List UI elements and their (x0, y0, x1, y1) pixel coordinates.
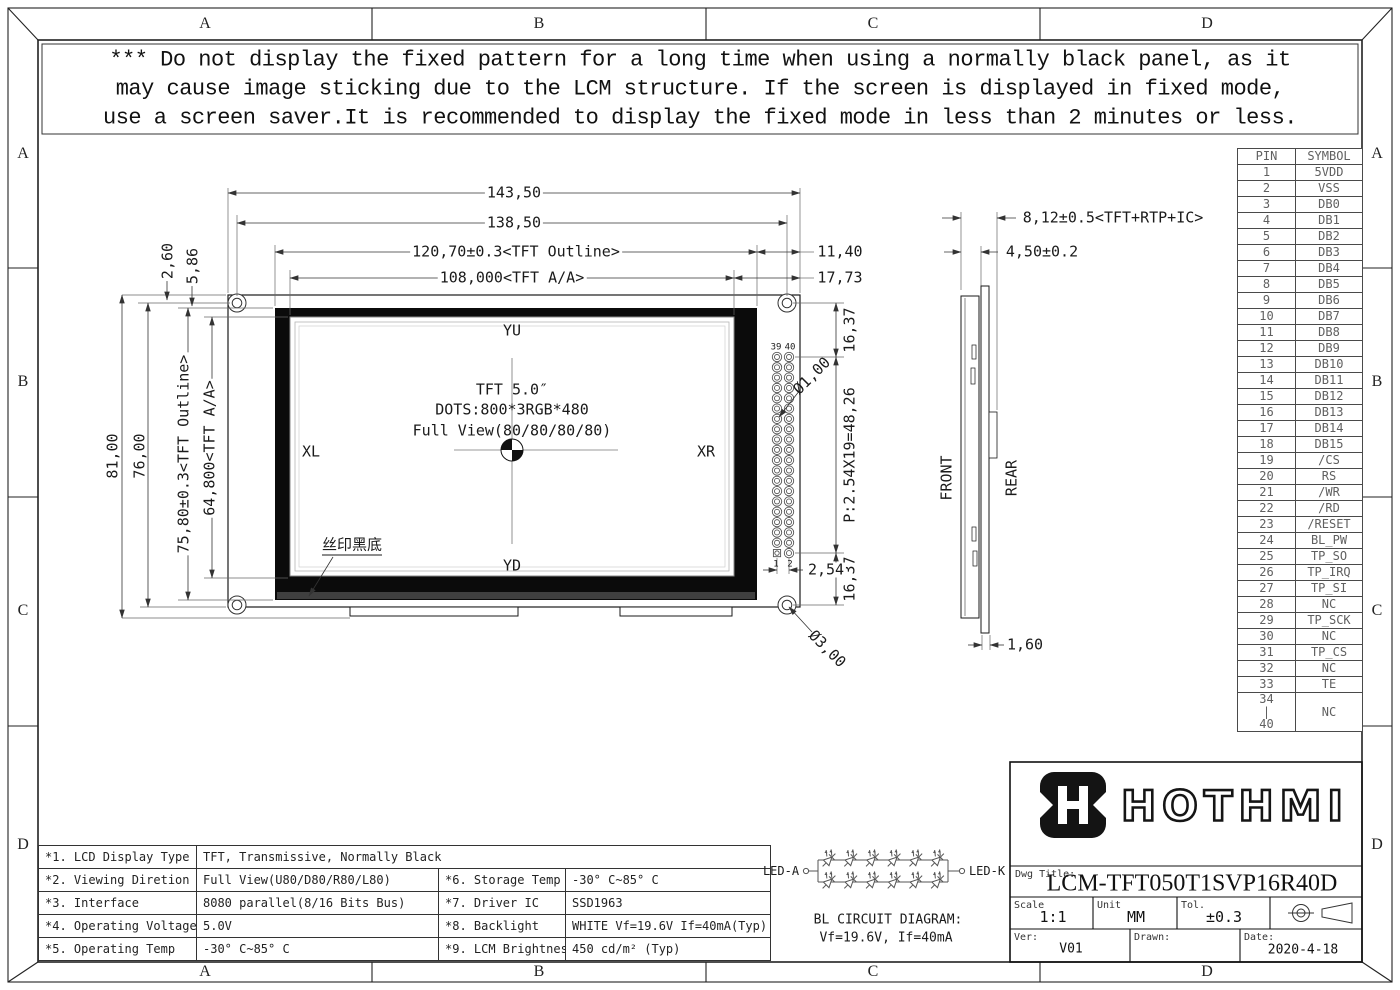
spec-row: *2. Viewing Diretion Full View(U80/D80/R… (39, 869, 771, 892)
pin-symbol: TP_SCK (1296, 613, 1363, 629)
pin-symbol: RS (1296, 469, 1363, 485)
pin-symbol: DB11 (1296, 373, 1363, 389)
pin-number: 20 (1238, 469, 1296, 485)
pin-number: 2 (1238, 181, 1296, 197)
panel-view-text: Full View(80/80/80/80) (411, 424, 614, 439)
spec-label: *7. Driver IC (439, 892, 566, 915)
dim-width-tft-outline: 120,70±0.3<TFT Outline> (410, 245, 622, 260)
panel-dots-text: DOTS:800*3RGB*480 (433, 403, 591, 418)
warning-line-2: may cause image sticking due to the LCM … (116, 77, 1285, 102)
pin-row: 2 VSS (1238, 181, 1363, 197)
pin-row: 17 DB14 (1238, 421, 1363, 437)
pin-row: 14 DB11 (1238, 373, 1363, 389)
pin-symbol: VSS (1296, 181, 1363, 197)
pin-row: 28 NC (1238, 597, 1363, 613)
dim-pin-pitch: 2,54 (806, 563, 846, 578)
pin-number: 22 (1238, 501, 1296, 517)
pin-number: 3 (1238, 197, 1296, 213)
pin-row: 29 TP_SCK (1238, 613, 1363, 629)
pin-symbol: TP_SI (1296, 581, 1363, 597)
pin-number: 33 (1238, 677, 1296, 693)
pin-number: 9 (1238, 293, 1296, 309)
bl-circuit (803, 847, 964, 891)
date-value: 2020-4-18 (1268, 943, 1338, 958)
zone-right-d: D (1371, 836, 1383, 854)
pin-number: 17 (1238, 421, 1296, 437)
pin-number: 12 (1238, 341, 1296, 357)
zone-right-c: C (1372, 602, 1383, 620)
connector-pin1-label: 1 (771, 561, 780, 570)
label-xr: XR (695, 445, 717, 460)
pin-symbol: DB5 (1296, 277, 1363, 293)
pin-row: 32 NC (1238, 661, 1363, 677)
pin-row: 24 BL_PW (1238, 533, 1363, 549)
pin-number: 26 (1238, 565, 1296, 581)
tol-label: Tol. (1181, 900, 1205, 911)
tol-value: ±0.3 (1206, 908, 1242, 926)
pin-symbol: DB0 (1296, 197, 1363, 213)
dim-connector-top: 16,37 (843, 305, 858, 354)
pin-symbol: BL_PW (1296, 533, 1363, 549)
zone-right-a: A (1371, 145, 1383, 163)
pin-row: 22 /RD (1238, 501, 1363, 517)
pin-table-header: PIN SYMBOL (1238, 149, 1363, 165)
led-array (816, 847, 946, 891)
spec-value: 450 cd/m² (Typ) (566, 938, 771, 961)
pin-symbol: DB14 (1296, 421, 1363, 437)
spec-row: *3. Interface 8080 parallel(8/16 Bits Bu… (39, 892, 771, 915)
pin-row: 21 /WR (1238, 485, 1363, 501)
pin-number: 19 (1238, 453, 1296, 469)
zone-left-b: B (18, 373, 29, 391)
zone-bottom-d: D (1201, 963, 1213, 981)
zone-bottom-c: C (868, 963, 879, 981)
zone-left-a: A (17, 145, 29, 163)
pin-symbol: TP_SO (1296, 549, 1363, 565)
pin-row: 13 DB10 (1238, 357, 1363, 373)
pin-number: 15 (1238, 389, 1296, 405)
dim-top-offset1: 2,60 (161, 241, 176, 281)
pin-symbol: DB2 (1296, 229, 1363, 245)
bl-circuit-subtitle: Vf=19.6V, If=40mA (817, 932, 954, 945)
pin-number: 4 (1238, 213, 1296, 229)
dim-height-holes: 76,00 (133, 431, 148, 480)
brand-logo-icon (1040, 772, 1106, 838)
pin-number: 21 (1238, 485, 1296, 501)
spec-value: -30° C~85° C (566, 869, 771, 892)
pin-symbol: NC (1296, 629, 1363, 645)
pin-number: 10 (1238, 309, 1296, 325)
pin-symbol: /RESET (1296, 517, 1363, 533)
pin-row: 15 DB12 (1238, 389, 1363, 405)
pin-row: 3 DB0 (1238, 197, 1363, 213)
symbol-column-header: SYMBOL (1296, 149, 1363, 165)
zone-top-c: C (868, 15, 879, 33)
pin-symbol: DB12 (1296, 389, 1363, 405)
side-rear-label: REAR (1005, 458, 1020, 498)
led-anode-label: LED-A (761, 865, 801, 877)
pin-row: 25 TP_SO (1238, 549, 1363, 565)
pin-symbol: TP_IRQ (1296, 565, 1363, 581)
pin-symbol: /RD (1296, 501, 1363, 517)
pin-symbol: /CS (1296, 453, 1363, 469)
connector-pin39-label: 39 (769, 344, 784, 353)
pin-row: 27 TP_SI (1238, 581, 1363, 597)
pin-row: 26 TP_IRQ (1238, 565, 1363, 581)
dim-thickness-pcb: 1,60 (1005, 638, 1045, 653)
pin-row: 30 NC (1238, 629, 1363, 645)
unit-label: Unit (1097, 900, 1121, 911)
zone-right-b: B (1372, 373, 1383, 391)
pin-row: 31 TP_CS (1238, 645, 1363, 661)
warning-line-3: use a screen saver.It is recommended to … (103, 106, 1297, 131)
pin-symbol: DB8 (1296, 325, 1363, 341)
scale-value: 1:1 (1039, 908, 1066, 926)
pin-symbol: DB10 (1296, 357, 1363, 373)
pin-number: 14 (1238, 373, 1296, 389)
pin-row: 4 DB1 (1238, 213, 1363, 229)
led-cathode-label: LED-K (967, 865, 1007, 877)
pin-symbol: /WR (1296, 485, 1363, 501)
zone-left-d: D (17, 836, 29, 854)
spec-label: *5. Operating Temp (39, 938, 197, 961)
pin-number: 11 (1238, 325, 1296, 341)
pin-number: 23 (1238, 517, 1296, 533)
pin-row: 34 | 40 NC (1238, 693, 1363, 732)
pin-symbol: DB7 (1296, 309, 1363, 325)
label-yu: YU (501, 324, 523, 339)
spec-value: -30° C~85° C (197, 938, 439, 961)
pin-table: PIN SYMBOL 1 5VDD 2 VSS 3 DB0 4 DB1 (1237, 148, 1363, 732)
pin-row: 19 /CS (1238, 453, 1363, 469)
label-xl: XL (300, 445, 322, 460)
center-target-icon (501, 439, 523, 461)
connector-pin2-label: 2 (785, 561, 794, 570)
spec-label: *6. Storage Temp (439, 869, 566, 892)
zone-bottom-a: A (199, 963, 211, 981)
side-view (961, 286, 997, 633)
date-label: Date: (1244, 932, 1274, 943)
pin-symbol: DB13 (1296, 405, 1363, 421)
pin-symbol: DB6 (1296, 293, 1363, 309)
spec-label: *9. LCM Brightness (439, 938, 566, 961)
zone-left-c: C (18, 602, 29, 620)
spec-value: SSD1963 (566, 892, 771, 915)
warning-line-1: *** Do not display the fixed pattern for… (109, 48, 1290, 73)
pin-number: 18 (1238, 437, 1296, 453)
dim-height-total: 81,00 (106, 431, 121, 480)
ver-value: V01 (1059, 942, 1082, 957)
pin-number: 25 (1238, 549, 1296, 565)
spec-row: *4. Operating Voltage 5.0V *8. Backlight… (39, 915, 771, 938)
pin-symbol: DB4 (1296, 261, 1363, 277)
panel-size-text: TFT 5.0″ (474, 383, 550, 398)
bl-circuit-title: BL CIRCUIT DIAGRAM: (812, 914, 965, 927)
pin-symbol: DB1 (1296, 213, 1363, 229)
pin-symbol: NC (1296, 661, 1363, 677)
pin-number: 27 (1238, 581, 1296, 597)
zone-top-b: B (534, 15, 545, 33)
pin-symbol: DB9 (1296, 341, 1363, 357)
pin-number: 32 (1238, 661, 1296, 677)
label-yd: YD (501, 559, 523, 574)
spec-table: *1. LCD Display Type TFT, Transmissive, … (38, 845, 771, 961)
spec-label: *4. Operating Voltage (39, 915, 197, 938)
spec-label: *1. LCD Display Type (39, 846, 197, 869)
pin-number: 31 (1238, 645, 1296, 661)
pin-number: 6 (1238, 245, 1296, 261)
pin-row: 16 DB13 (1238, 405, 1363, 421)
pin-row: 10 DB7 (1238, 309, 1363, 325)
spec-row: *5. Operating Temp -30° C~85° C *9. LCM … (39, 938, 771, 961)
pin-column-header: PIN (1238, 149, 1296, 165)
pin-number: 1 (1238, 165, 1296, 181)
spec-value: 5.0V (197, 915, 439, 938)
pin-symbol: NC (1296, 693, 1363, 732)
pin-symbol: DB15 (1296, 437, 1363, 453)
spec-row: *1. LCD Display Type TFT, Transmissive, … (39, 846, 771, 869)
pin-row: 20 RS (1238, 469, 1363, 485)
pin-number: 28 (1238, 597, 1296, 613)
pin-number: 30 (1238, 629, 1296, 645)
unit-value: MM (1127, 908, 1145, 926)
pin-number: 7 (1238, 261, 1296, 277)
spec-value: 8080 parallel(8/16 Bits Bus) (197, 892, 439, 915)
pin-number: 34 | 40 (1238, 693, 1296, 732)
spec-label: *2. Viewing Diretion (39, 869, 197, 892)
pin-row: 33 TE (1238, 677, 1363, 693)
ver-label: Ver: (1014, 932, 1038, 943)
dim-width-right2: 17,73 (815, 271, 864, 286)
pin-number: 8 (1238, 277, 1296, 293)
pin-row: 23 /RESET (1238, 517, 1363, 533)
pin-number: 5 (1238, 229, 1296, 245)
pin-symbol: NC (1296, 597, 1363, 613)
pin-number: 29 (1238, 613, 1296, 629)
pin-symbol: DB3 (1296, 245, 1363, 261)
dim-height-active-area: 64,800<TFT A/A> (203, 378, 218, 517)
zone-top-d: D (1201, 15, 1213, 33)
dim-width-total: 143,50 (485, 186, 543, 201)
pin-number: 24 (1238, 533, 1296, 549)
pin-row: 1 5VDD (1238, 165, 1363, 181)
dim-width-holes: 138,50 (485, 216, 543, 231)
silkprint-label: 丝印黑底 (322, 536, 382, 556)
zone-bottom-b: B (534, 963, 545, 981)
engineering-drawing-sheet: A B C D A B C D A B C D A B C D *** Do n… (0, 0, 1400, 990)
dim-thickness-front: 4,50±0.2 (1004, 245, 1080, 260)
pin-row: 8 DB5 (1238, 277, 1363, 293)
pin-row: 9 DB6 (1238, 293, 1363, 309)
spec-label: *8. Backlight (439, 915, 566, 938)
pin-row: 11 DB8 (1238, 325, 1363, 341)
projection-symbol-icon (1288, 903, 1352, 923)
dim-width-right1: 11,40 (815, 245, 864, 260)
pin-row: 7 DB4 (1238, 261, 1363, 277)
pin-symbol: 5VDD (1296, 165, 1363, 181)
drawn-label: Drawn: (1134, 932, 1170, 943)
dim-width-active-area: 108,000<TFT A/A> (438, 271, 587, 286)
pin-row: 6 DB3 (1238, 245, 1363, 261)
pin-number: 16 (1238, 405, 1296, 421)
dim-thickness-total: 8,12±0.5<TFT+RTP+IC> (1021, 211, 1206, 226)
side-front-label: FRONT (940, 453, 955, 502)
pin-number: 13 (1238, 357, 1296, 373)
pin-row: 12 DB9 (1238, 341, 1363, 357)
connector-pin40-label: 40 (783, 344, 798, 353)
spec-value: Full View(U80/D80/R80/L80) (197, 869, 439, 892)
dim-connector-pitch: P:2.54X19=48,26 (843, 385, 858, 524)
pin-row: 18 DB15 (1238, 437, 1363, 453)
dim-top-offset2: 5,86 (186, 246, 201, 286)
zone-top-a: A (199, 15, 211, 33)
pin-symbol: TP_CS (1296, 645, 1363, 661)
pin-row: 5 DB2 (1238, 229, 1363, 245)
dim-height-tft-outline: 75,80±0.3<TFT Outline> (177, 353, 192, 556)
pin-symbol: TE (1296, 677, 1363, 693)
brand-logo-text: HOTHMI (1121, 782, 1349, 831)
spec-value: TFT, Transmissive, Normally Black (197, 846, 771, 869)
spec-value: WHITE Vf=19.6V If=40mA(Typ) (566, 915, 771, 938)
dwg-title-value: LCM-TFT050T1SVP16R40D (1047, 871, 1338, 898)
spec-label: *3. Interface (39, 892, 197, 915)
